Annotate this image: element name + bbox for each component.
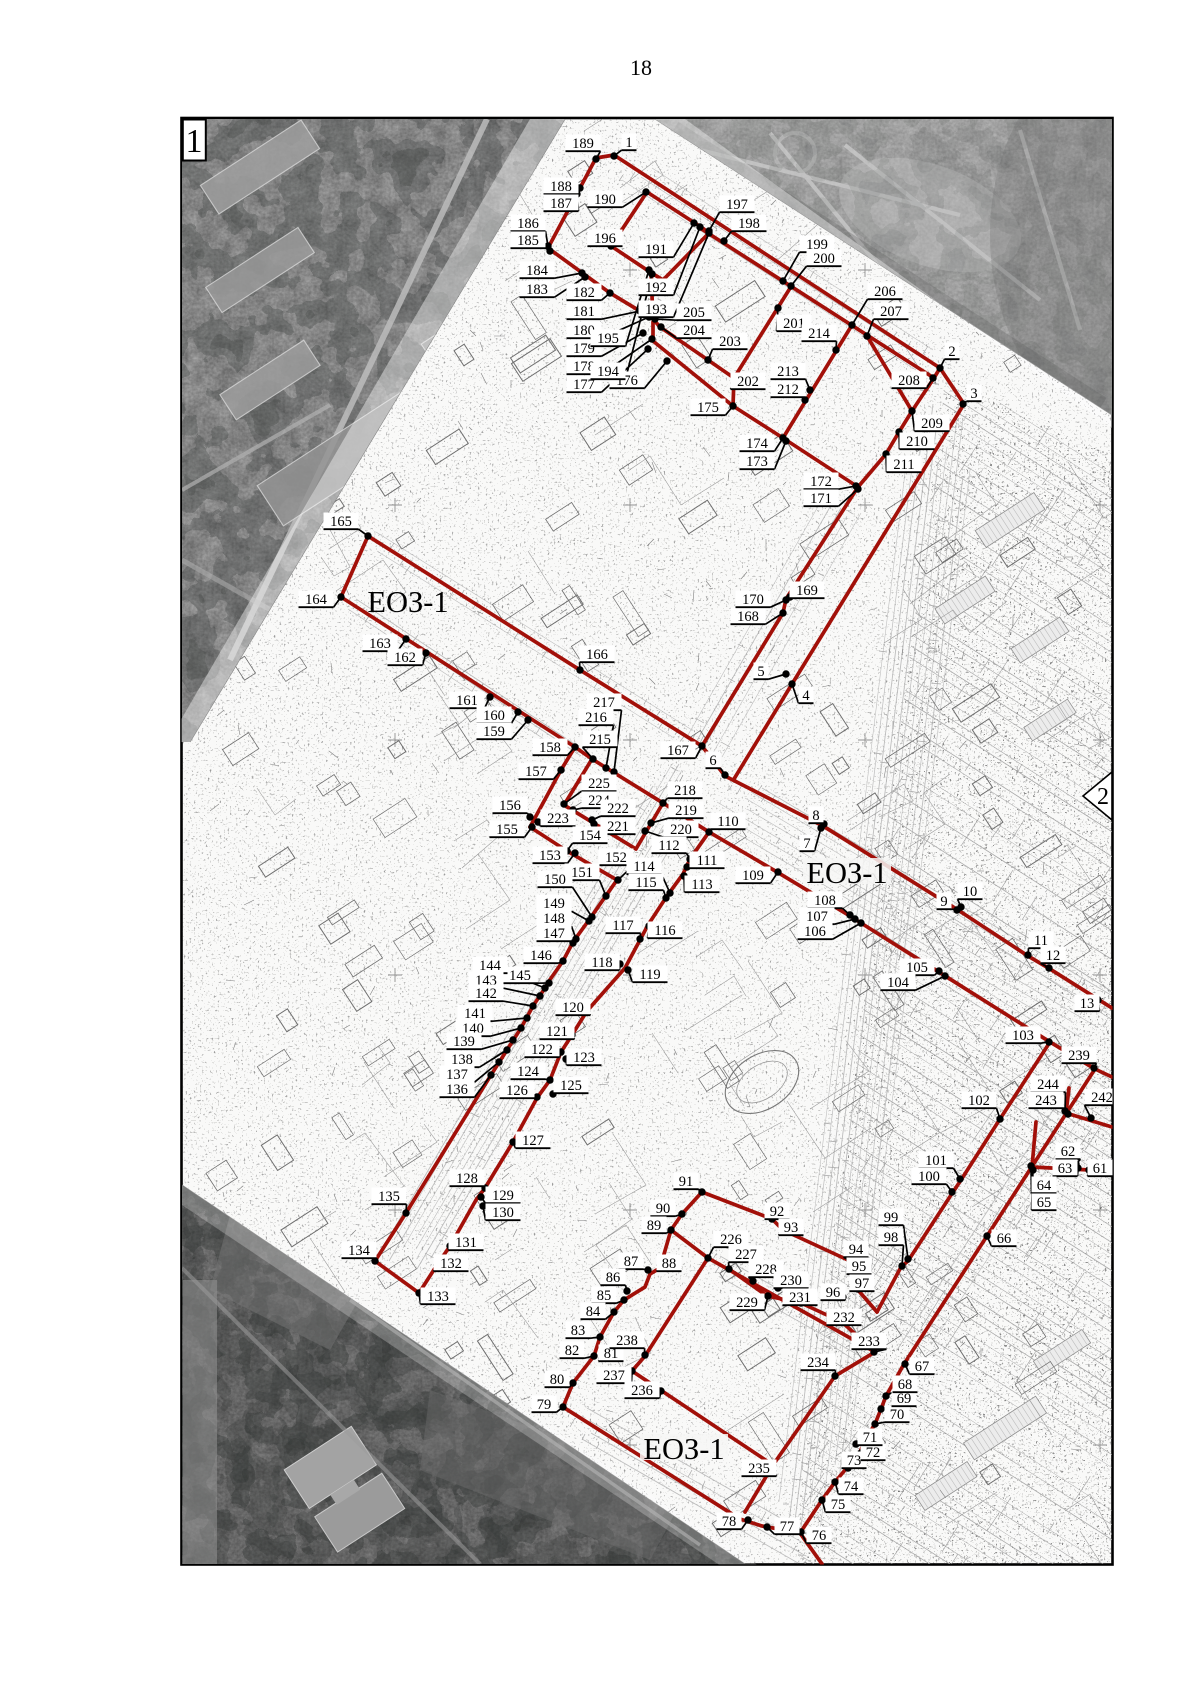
- svg-text:182: 182: [573, 285, 595, 301]
- svg-text:193: 193: [645, 302, 667, 318]
- svg-text:75: 75: [831, 1497, 846, 1513]
- svg-text:192: 192: [645, 280, 667, 296]
- svg-text:3: 3: [970, 386, 977, 402]
- svg-text:1: 1: [186, 123, 203, 160]
- svg-text:214: 214: [808, 326, 831, 342]
- svg-text:124: 124: [517, 1064, 540, 1080]
- svg-text:5: 5: [757, 664, 764, 680]
- svg-text:128: 128: [456, 1171, 478, 1187]
- svg-text:76: 76: [812, 1528, 827, 1544]
- svg-text:93: 93: [784, 1220, 799, 1236]
- svg-text:ЕОЗ-1: ЕОЗ-1: [806, 856, 887, 890]
- svg-text:65: 65: [1037, 1195, 1052, 1211]
- svg-text:132: 132: [440, 1256, 462, 1272]
- svg-text:101: 101: [925, 1153, 947, 1169]
- svg-text:68: 68: [898, 1377, 913, 1393]
- svg-text:210: 210: [906, 434, 928, 450]
- svg-text:79: 79: [537, 1397, 552, 1413]
- svg-text:172: 172: [810, 474, 832, 490]
- svg-text:82: 82: [565, 1343, 580, 1359]
- svg-text:152: 152: [605, 850, 627, 866]
- svg-text:146: 146: [530, 948, 552, 964]
- svg-text:139: 139: [453, 1034, 475, 1050]
- svg-text:204: 204: [683, 323, 706, 339]
- svg-text:159: 159: [483, 724, 505, 740]
- svg-text:102: 102: [968, 1093, 990, 1109]
- svg-text:7: 7: [803, 836, 810, 852]
- svg-text:216: 216: [585, 710, 607, 726]
- svg-text:72: 72: [866, 1445, 881, 1461]
- svg-text:70: 70: [890, 1407, 905, 1423]
- svg-text:110: 110: [717, 814, 738, 830]
- svg-text:71: 71: [863, 1430, 878, 1446]
- svg-text:206: 206: [874, 284, 896, 300]
- svg-text:87: 87: [624, 1254, 639, 1270]
- svg-text:207: 207: [880, 304, 902, 320]
- svg-text:4: 4: [802, 688, 810, 704]
- svg-text:200: 200: [813, 251, 835, 267]
- svg-text:100: 100: [918, 1169, 940, 1185]
- svg-text:171: 171: [810, 491, 832, 507]
- svg-text:90: 90: [656, 1201, 671, 1217]
- svg-text:167: 167: [667, 743, 689, 759]
- svg-text:10: 10: [963, 884, 978, 900]
- svg-text:154: 154: [579, 828, 602, 844]
- svg-text:67: 67: [915, 1359, 930, 1375]
- svg-text:238: 238: [616, 1333, 638, 1349]
- svg-text:242: 242: [1091, 1090, 1113, 1106]
- svg-text:85: 85: [597, 1288, 612, 1304]
- svg-text:213: 213: [777, 364, 799, 380]
- svg-text:86: 86: [606, 1270, 621, 1286]
- svg-text:203: 203: [719, 334, 741, 350]
- svg-text:123: 123: [573, 1050, 595, 1066]
- svg-text:126: 126: [506, 1083, 528, 1099]
- svg-text:94: 94: [849, 1242, 864, 1258]
- svg-text:232: 232: [833, 1310, 855, 1326]
- svg-text:18: 18: [630, 55, 652, 80]
- svg-text:91: 91: [679, 1174, 694, 1190]
- svg-text:189: 189: [572, 136, 594, 152]
- svg-text:97: 97: [855, 1276, 870, 1292]
- svg-text:2: 2: [948, 344, 955, 360]
- svg-text:12: 12: [1046, 948, 1061, 964]
- svg-text:155: 155: [496, 822, 518, 838]
- svg-text:118: 118: [591, 955, 612, 971]
- svg-text:187: 187: [550, 196, 572, 212]
- svg-text:151: 151: [571, 865, 593, 881]
- svg-text:239: 239: [1068, 1048, 1090, 1064]
- svg-text:243: 243: [1035, 1093, 1057, 1109]
- svg-text:130: 130: [492, 1205, 514, 1221]
- svg-text:165: 165: [330, 514, 352, 530]
- svg-text:1: 1: [625, 135, 632, 151]
- svg-text:136: 136: [446, 1082, 468, 1098]
- svg-text:181: 181: [573, 304, 595, 320]
- svg-text:64: 64: [1037, 1178, 1052, 1194]
- svg-text:147: 147: [543, 926, 565, 942]
- svg-text:121: 121: [546, 1024, 568, 1040]
- svg-text:129: 129: [492, 1188, 514, 1204]
- svg-text:231: 231: [789, 1290, 811, 1306]
- svg-text:219: 219: [675, 803, 697, 819]
- svg-text:168: 168: [737, 609, 759, 625]
- svg-text:222: 222: [607, 801, 629, 817]
- svg-text:115: 115: [635, 875, 656, 891]
- svg-text:125: 125: [560, 1078, 582, 1094]
- svg-text:186: 186: [517, 216, 539, 232]
- svg-text:78: 78: [722, 1514, 737, 1530]
- svg-text:208: 208: [898, 373, 920, 389]
- svg-text:69: 69: [897, 1391, 912, 1407]
- svg-text:ЕОЗ-1: ЕОЗ-1: [643, 1432, 724, 1466]
- svg-text:114: 114: [633, 859, 655, 875]
- svg-text:88: 88: [662, 1256, 677, 1272]
- svg-text:234: 234: [807, 1355, 830, 1371]
- svg-text:135: 135: [378, 1189, 400, 1205]
- svg-text:230: 230: [780, 1273, 802, 1289]
- svg-text:188: 188: [550, 179, 572, 195]
- svg-text:158: 158: [539, 740, 561, 756]
- svg-text:190: 190: [594, 192, 616, 208]
- svg-text:220: 220: [670, 822, 692, 838]
- svg-text:ЕОЗ-1: ЕОЗ-1: [367, 585, 448, 619]
- svg-text:160: 160: [483, 708, 505, 724]
- svg-text:113: 113: [691, 877, 712, 893]
- svg-text:150: 150: [544, 872, 566, 888]
- svg-text:133: 133: [427, 1289, 449, 1305]
- svg-text:211: 211: [893, 457, 914, 473]
- svg-text:215: 215: [589, 732, 611, 748]
- svg-text:236: 236: [631, 1383, 653, 1399]
- svg-text:73: 73: [847, 1453, 862, 1469]
- svg-text:116: 116: [654, 923, 675, 939]
- svg-text:233: 233: [858, 1334, 880, 1350]
- svg-text:153: 153: [539, 848, 561, 864]
- svg-text:131: 131: [455, 1235, 477, 1251]
- svg-text:63: 63: [1058, 1161, 1073, 1177]
- svg-text:103: 103: [1012, 1028, 1034, 1044]
- svg-text:162: 162: [394, 650, 416, 666]
- svg-text:120: 120: [562, 1000, 584, 1016]
- svg-text:95: 95: [852, 1259, 867, 1275]
- svg-text:218: 218: [674, 783, 696, 799]
- svg-text:13: 13: [1080, 996, 1095, 1012]
- svg-text:77: 77: [780, 1519, 795, 1535]
- svg-text:237: 237: [603, 1368, 625, 1384]
- svg-text:223: 223: [547, 811, 569, 827]
- svg-text:229: 229: [736, 1295, 758, 1311]
- svg-text:106: 106: [804, 924, 826, 940]
- svg-text:161: 161: [456, 693, 478, 709]
- svg-text:6: 6: [709, 753, 716, 769]
- svg-text:2: 2: [1097, 784, 1109, 810]
- svg-text:62: 62: [1061, 1144, 1076, 1160]
- svg-text:112: 112: [658, 838, 679, 854]
- svg-text:119: 119: [639, 967, 660, 983]
- svg-text:194: 194: [597, 364, 620, 380]
- svg-text:145: 145: [509, 968, 531, 984]
- svg-text:169: 169: [796, 583, 818, 599]
- svg-text:212: 212: [777, 382, 799, 398]
- svg-text:109: 109: [742, 868, 764, 884]
- svg-text:80: 80: [550, 1372, 565, 1388]
- svg-text:173: 173: [746, 454, 768, 470]
- svg-text:202: 202: [737, 374, 759, 390]
- svg-text:122: 122: [531, 1042, 553, 1058]
- svg-text:104: 104: [887, 975, 910, 991]
- svg-text:98: 98: [884, 1230, 899, 1246]
- svg-text:89: 89: [647, 1218, 662, 1234]
- svg-text:117: 117: [612, 918, 633, 934]
- svg-text:157: 157: [525, 764, 547, 780]
- svg-text:142: 142: [475, 986, 497, 1002]
- svg-text:244: 244: [1037, 1077, 1060, 1093]
- svg-text:191: 191: [645, 242, 667, 258]
- svg-text:174: 174: [746, 436, 769, 452]
- svg-text:8: 8: [812, 808, 819, 824]
- svg-text:183: 183: [526, 282, 548, 298]
- svg-text:225: 225: [588, 776, 610, 792]
- svg-text:84: 84: [586, 1304, 601, 1320]
- svg-text:92: 92: [770, 1204, 785, 1220]
- svg-text:205: 205: [683, 305, 705, 321]
- svg-text:209: 209: [921, 416, 943, 432]
- svg-text:127: 127: [522, 1133, 544, 1149]
- svg-text:74: 74: [844, 1479, 859, 1495]
- svg-text:164: 164: [305, 592, 328, 608]
- svg-text:99: 99: [884, 1210, 899, 1226]
- svg-text:66: 66: [997, 1231, 1012, 1247]
- svg-text:235: 235: [748, 1461, 770, 1477]
- svg-text:9: 9: [940, 894, 947, 910]
- svg-text:96: 96: [826, 1285, 841, 1301]
- svg-text:170: 170: [742, 592, 764, 608]
- svg-text:156: 156: [499, 798, 521, 814]
- svg-text:111: 111: [697, 853, 718, 869]
- svg-text:195: 195: [597, 331, 619, 347]
- svg-text:61: 61: [1093, 1161, 1108, 1177]
- svg-text:108: 108: [814, 893, 836, 909]
- svg-text:166: 166: [586, 647, 608, 663]
- svg-text:175: 175: [697, 400, 719, 416]
- svg-text:196: 196: [594, 231, 616, 247]
- svg-text:198: 198: [738, 216, 760, 232]
- svg-text:184: 184: [526, 263, 549, 279]
- svg-text:83: 83: [571, 1323, 586, 1339]
- svg-text:185: 185: [517, 233, 539, 249]
- svg-text:134: 134: [348, 1243, 371, 1259]
- svg-text:197: 197: [726, 197, 748, 213]
- svg-text:221: 221: [607, 819, 629, 835]
